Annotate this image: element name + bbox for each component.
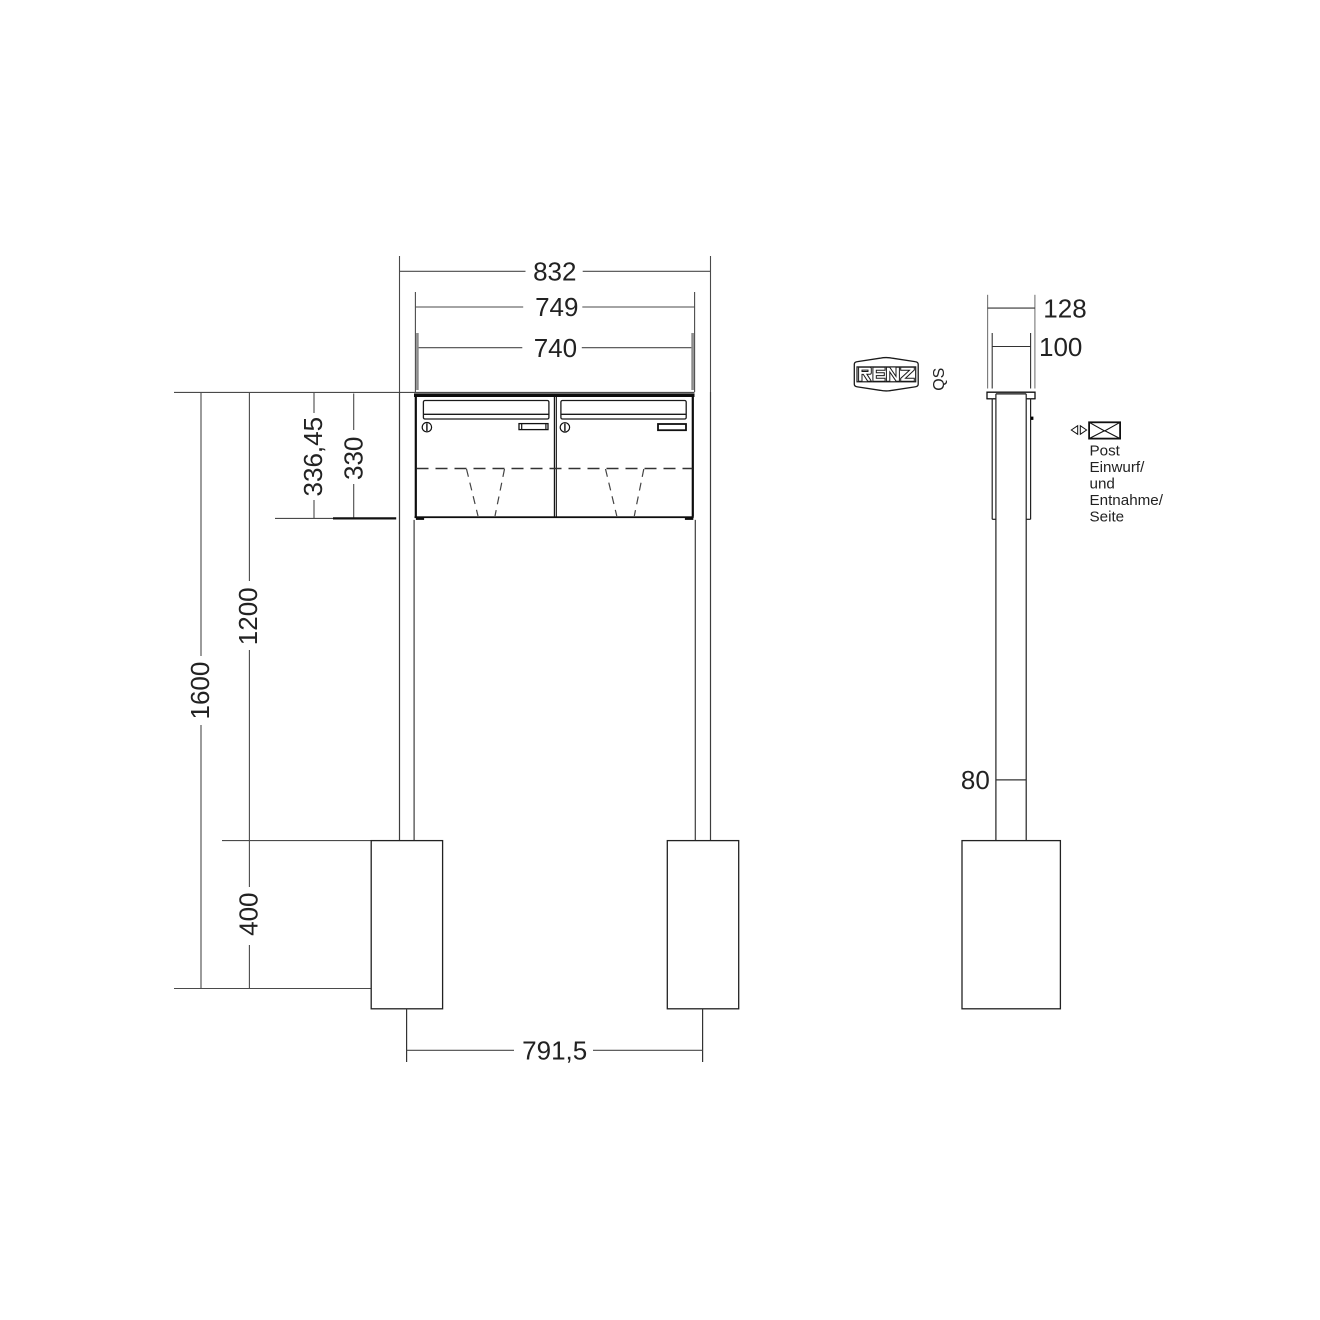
svg-text:791,5: 791,5 — [522, 1036, 587, 1066]
svg-text:832: 832 — [533, 257, 576, 287]
svg-text:740: 740 — [534, 333, 577, 363]
svg-text:Entnahme/: Entnahme/ — [1090, 492, 1164, 509]
svg-text:QS: QS — [931, 368, 948, 391]
svg-text:100: 100 — [1039, 332, 1082, 362]
svg-text:330: 330 — [339, 437, 369, 480]
svg-text:Post: Post — [1090, 443, 1121, 460]
svg-text:128: 128 — [1043, 293, 1086, 323]
svg-text:400: 400 — [234, 893, 264, 936]
svg-text:1200: 1200 — [233, 587, 263, 645]
svg-text:Seite: Seite — [1090, 508, 1125, 525]
svg-text:und: und — [1090, 475, 1115, 492]
svg-text:336,45: 336,45 — [298, 417, 328, 497]
svg-text:80: 80 — [961, 765, 990, 795]
svg-text:749: 749 — [535, 292, 578, 322]
svg-text:Einwurf/: Einwurf/ — [1090, 459, 1146, 476]
svg-text:1600: 1600 — [185, 662, 215, 720]
